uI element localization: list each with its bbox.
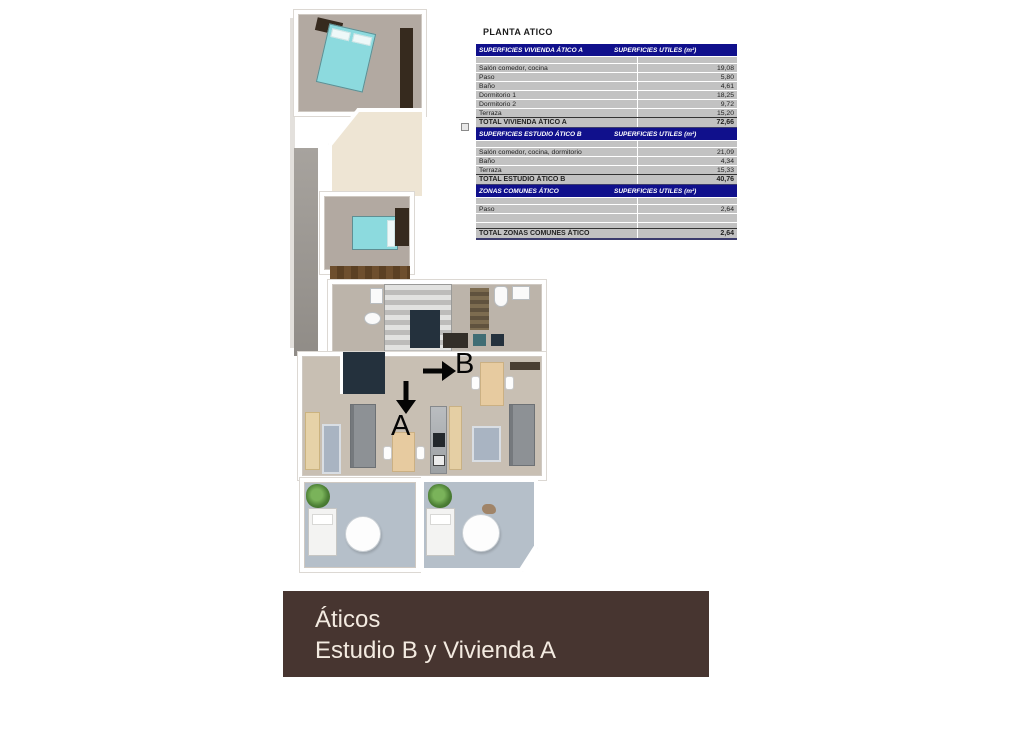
chair-a-right — [416, 446, 425, 460]
lounger-left — [308, 508, 337, 556]
round-table-left — [345, 516, 381, 552]
banner-line-1: Áticos — [315, 604, 709, 635]
wardrobe-2 — [395, 208, 409, 246]
table-row: Salón comedor, cocina, dormitorio21,09 — [476, 147, 737, 156]
cabinet-beige — [449, 406, 462, 470]
table-row: Baño4,61 — [476, 81, 737, 90]
title-banner: Áticos Estudio B y Vivienda A — [283, 591, 709, 677]
toilet-bath-b — [494, 286, 508, 307]
table-row: Terraza15,33 — [476, 165, 737, 174]
unit-b-label: B — [455, 348, 474, 381]
table-header-title: SUPERFICIES ESTUDIO ÁTICO B — [479, 131, 582, 138]
rug-a — [322, 424, 341, 474]
round-table-right — [462, 514, 500, 552]
shelf-a — [305, 412, 320, 470]
rug-b — [472, 426, 501, 462]
sink-bath-b — [512, 286, 530, 300]
plant-right — [428, 484, 452, 508]
table-vivienda-a: SUPERFICIES VIVIENDA ÁTICO A SUPERFICIES… — [476, 44, 737, 129]
table-header: SUPERFICIES VIVIENDA ÁTICO A SUPERFICIES… — [476, 44, 737, 56]
bed-single — [352, 216, 398, 250]
table-header-title: ZONAS COMUNES ÁTICO — [479, 188, 559, 195]
dog-figure — [482, 504, 496, 514]
table-estudio-b: SUPERFICIES ESTUDIO ÁTICO B SUPERFICIES … — [476, 128, 737, 186]
wardrobe-1 — [400, 28, 413, 110]
table-row: Dormitorio 29,72 — [476, 99, 737, 108]
arrow-right-icon — [422, 360, 456, 382]
table-header: ZONAS COMUNES ÁTICO SUPERFICIES UTILES (… — [476, 185, 737, 197]
document-page: B A PLANTA ATICO SUPERFICIES VIVIENDA ÁT… — [0, 0, 1024, 732]
table-row: Dormitorio 118,25 — [476, 90, 737, 99]
dining-table-b — [480, 362, 504, 406]
counter-strip-b — [510, 362, 540, 370]
plant-left — [306, 484, 330, 508]
plan-title: PLANTA ATICO — [483, 27, 553, 37]
table-row: Terraza15,20 — [476, 108, 737, 117]
table-row: Salón comedor, cocina19,08 — [476, 63, 737, 72]
tv-unit — [340, 352, 385, 394]
chair-a-left — [383, 446, 392, 460]
table-header: SUPERFICIES ESTUDIO ÁTICO B SUPERFICIES … — [476, 128, 737, 140]
toilet-bath-a — [364, 312, 381, 325]
table-header-units: SUPERFICIES UTILES (m²) — [614, 188, 696, 195]
appliance-teal — [473, 334, 486, 346]
corridor-paso — [294, 148, 320, 356]
table-row — [476, 140, 737, 147]
table-total-row: TOTAL ZONAS COMUNES ÁTICO2,64 — [476, 228, 737, 238]
table-zonas-comunes: ZONAS COMUNES ÁTICO SUPERFICIES UTILES (… — [476, 185, 737, 240]
table-total-row: TOTAL ESTUDIO ÁTICO B40,76 — [476, 174, 737, 184]
counter-dark — [443, 333, 468, 348]
sofa-b — [509, 404, 535, 466]
table-total-row: TOTAL VIVIENDA ÁTICO A72,66 — [476, 117, 737, 127]
arrow-down-icon — [395, 380, 417, 414]
object-anchor-marker — [461, 123, 469, 131]
table-row: Paso2,64 — [476, 204, 737, 213]
table-header-units: SUPERFICIES UTILES (m²) — [614, 47, 696, 54]
banner-line-2: Estudio B y Vivienda A — [315, 635, 709, 666]
table-header-title: SUPERFICIES VIVIENDA ÁTICO A — [479, 47, 583, 54]
unit-a-label: A — [391, 410, 410, 443]
table-row — [476, 222, 737, 228]
table-row — [476, 197, 737, 204]
table-row — [476, 56, 737, 63]
lounger-right — [426, 508, 455, 556]
stairwell-opening — [410, 310, 440, 348]
stairs-brown — [470, 288, 489, 330]
hall-terrace-floor — [332, 112, 422, 196]
chair-b-right — [505, 376, 514, 390]
hall-terrace-wall — [328, 108, 426, 200]
table-row: Baño4,34 — [476, 156, 737, 165]
cooktop — [433, 433, 445, 447]
table-row — [476, 213, 737, 222]
table-row: Paso5,80 — [476, 72, 737, 81]
kitchen-island — [430, 406, 447, 474]
sofa-a — [350, 404, 376, 468]
oven — [433, 455, 445, 466]
table-header-units: SUPERFICIES UTILES (m²) — [614, 131, 696, 138]
appliance-navy — [491, 334, 504, 346]
sink-bath-a — [370, 288, 383, 304]
